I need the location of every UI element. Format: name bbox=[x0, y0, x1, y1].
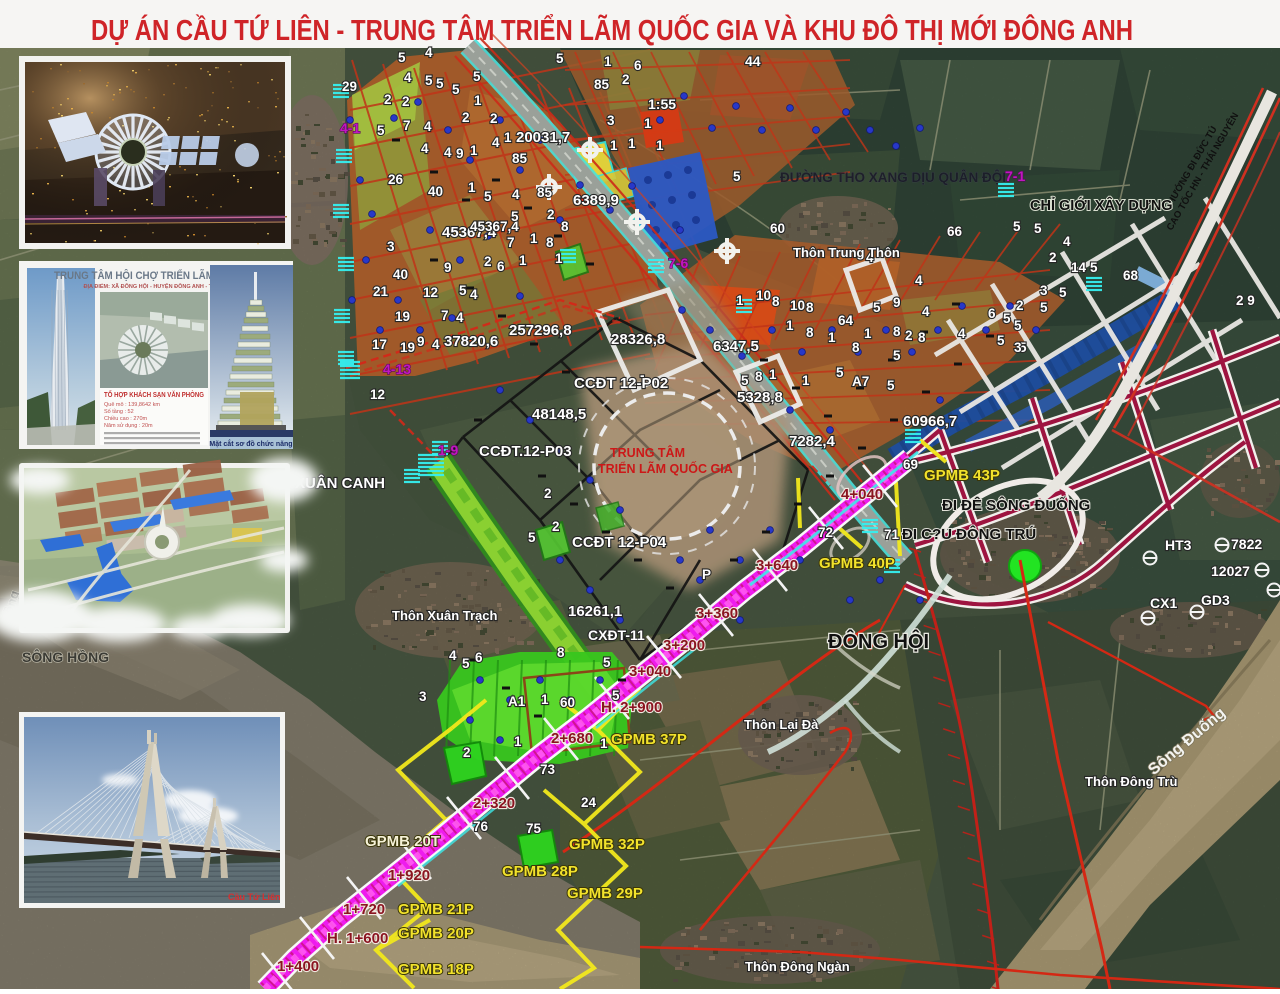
svg-text:1: 1 bbox=[470, 143, 478, 158]
svg-text:-: - bbox=[640, 368, 645, 383]
svg-text:2: 2 bbox=[484, 254, 492, 269]
svg-text:1+920: 1+920 bbox=[388, 867, 430, 884]
svg-text:1: 1 bbox=[628, 136, 636, 151]
svg-text:CX1: CX1 bbox=[1150, 595, 1177, 611]
svg-text:2: 2 bbox=[544, 486, 552, 501]
svg-text:8: 8 bbox=[893, 324, 901, 339]
svg-text:2+320: 2+320 bbox=[473, 795, 515, 812]
svg-text:1: 1 bbox=[786, 318, 794, 333]
svg-text:8: 8 bbox=[852, 340, 860, 355]
svg-text:5328,8: 5328,8 bbox=[737, 389, 783, 406]
svg-text:5: 5 bbox=[1014, 318, 1022, 333]
svg-text:3: 3 bbox=[419, 689, 427, 704]
svg-text:5: 5 bbox=[733, 169, 741, 184]
svg-text:Thôn Đông Trù: Thôn Đông Trù bbox=[1085, 774, 1177, 789]
svg-text:5: 5 bbox=[398, 50, 406, 65]
svg-text:ĐÔNG HỘI: ĐÔNG HỘI bbox=[828, 629, 929, 653]
svg-text:CCĐT 12-P04: CCĐT 12-P04 bbox=[572, 534, 667, 551]
svg-text:4: 4 bbox=[915, 273, 923, 288]
svg-text:7282,4: 7282,4 bbox=[789, 433, 836, 450]
svg-text:HT3: HT3 bbox=[1165, 537, 1192, 553]
svg-text:1: 1 bbox=[610, 138, 618, 153]
svg-text:21: 21 bbox=[373, 284, 389, 299]
svg-text:1: 1 bbox=[468, 180, 476, 195]
svg-text:37820,6: 37820,6 bbox=[444, 333, 498, 350]
svg-text:1: 1 bbox=[864, 326, 872, 341]
svg-text:Cầu Tứ Liên: Cầu Tứ Liên bbox=[228, 892, 281, 902]
svg-text:73: 73 bbox=[540, 762, 556, 777]
svg-text:6: 6 bbox=[988, 306, 996, 321]
svg-text:9: 9 bbox=[456, 146, 464, 161]
svg-text:7-1: 7-1 bbox=[1005, 168, 1025, 184]
svg-text:5: 5 bbox=[1003, 311, 1011, 326]
svg-text:SÔNG HỒNG: SÔNG HỒNG bbox=[22, 648, 109, 665]
svg-text:4+040: 4+040 bbox=[841, 486, 883, 503]
svg-text:85: 85 bbox=[537, 185, 553, 200]
svg-text:60966,7: 60966,7 bbox=[903, 413, 957, 430]
svg-text:8: 8 bbox=[546, 235, 554, 250]
svg-text:GPMB 21P: GPMB 21P bbox=[398, 901, 474, 918]
svg-text:5: 5 bbox=[1040, 300, 1048, 315]
svg-text:GD3: GD3 bbox=[1201, 592, 1230, 608]
svg-text:2+680: 2+680 bbox=[551, 730, 593, 747]
svg-text:5: 5 bbox=[1013, 219, 1021, 234]
svg-text:GPMB 43P: GPMB 43P bbox=[924, 467, 1000, 484]
svg-text:3+040: 3+040 bbox=[629, 663, 671, 680]
svg-text:5: 5 bbox=[741, 373, 749, 388]
svg-text:4: 4 bbox=[470, 287, 478, 302]
svg-text:20031,7: 20031,7 bbox=[516, 129, 570, 146]
svg-text:4: 4 bbox=[424, 119, 432, 134]
svg-text:8: 8 bbox=[755, 369, 763, 384]
svg-text:9: 9 bbox=[417, 334, 425, 349]
svg-text:60: 60 bbox=[770, 221, 785, 236]
svg-text:Chiều cao : 270m: Chiều cao : 270m bbox=[104, 416, 148, 422]
svg-text:1: 1 bbox=[828, 330, 836, 345]
svg-text:5: 5 bbox=[1034, 221, 1042, 236]
svg-text:4: 4 bbox=[432, 337, 440, 352]
svg-text:Thôn Đông Ngàn: Thôn Đông Ngàn bbox=[745, 959, 850, 974]
svg-text:CCĐT 12-P02: CCĐT 12-P02 bbox=[574, 375, 668, 392]
svg-text:TRIỂN LÃM QUỐC GIA: TRIỂN LÃM QUỐC GIA bbox=[598, 461, 733, 476]
svg-text:5: 5 bbox=[1090, 260, 1098, 275]
svg-text:GPMB 20P: GPMB 20P bbox=[398, 925, 474, 942]
svg-text:85: 85 bbox=[512, 151, 528, 166]
svg-text:16261,1: 16261,1 bbox=[568, 603, 622, 620]
svg-text:4-1: 4-1 bbox=[340, 120, 360, 136]
svg-text:4: 4 bbox=[958, 326, 966, 341]
svg-text:8: 8 bbox=[806, 300, 814, 315]
svg-text:1: 1 bbox=[736, 293, 744, 308]
svg-text:5: 5 bbox=[873, 300, 881, 315]
svg-text:Mặt cắt sơ đồ chức năng: Mặt cắt sơ đồ chức năng bbox=[209, 439, 292, 448]
svg-text:GPMB 18P: GPMB 18P bbox=[398, 961, 474, 978]
svg-text:7-6: 7-6 bbox=[668, 255, 688, 271]
svg-text:4: 4 bbox=[421, 141, 429, 156]
svg-text:75: 75 bbox=[526, 821, 542, 836]
svg-text:4: 4 bbox=[449, 648, 457, 663]
svg-text:Số tầng : 52: Số tầng : 52 bbox=[104, 409, 134, 415]
svg-text:Năm sử dụng : 20m: Năm sử dụng : 20m bbox=[104, 422, 153, 429]
svg-text:19: 19 bbox=[395, 309, 410, 324]
svg-text:4: 4 bbox=[1063, 234, 1071, 249]
svg-text:ĐƯỜNG THO XANG DỊU QUÂN ĐỘI: ĐƯỜNG THO XANG DỊU QUÂN ĐỘI bbox=[780, 170, 1006, 185]
svg-text:48148,5: 48148,5 bbox=[532, 406, 586, 423]
svg-text:1: 1 bbox=[474, 93, 482, 108]
svg-text:5: 5 bbox=[528, 530, 536, 545]
svg-text:26: 26 bbox=[388, 172, 404, 187]
svg-text:3+200: 3+200 bbox=[663, 637, 705, 654]
svg-text:1: 1 bbox=[769, 367, 777, 382]
svg-text:72: 72 bbox=[818, 525, 833, 540]
svg-text:8: 8 bbox=[806, 325, 814, 340]
svg-text:6389,9: 6389,9 bbox=[573, 192, 619, 209]
svg-text:2: 2 bbox=[462, 110, 470, 125]
svg-text:1-9: 1-9 bbox=[438, 442, 458, 458]
svg-text:1: 1 bbox=[555, 251, 563, 266]
svg-text:19: 19 bbox=[400, 340, 415, 355]
svg-text:2: 2 bbox=[402, 94, 410, 109]
svg-text:7: 7 bbox=[403, 118, 411, 133]
svg-text:H. 1+600: H. 1+600 bbox=[327, 930, 388, 947]
svg-text:7: 7 bbox=[507, 235, 515, 250]
svg-text:76: 76 bbox=[473, 819, 489, 834]
svg-text:9: 9 bbox=[444, 260, 452, 275]
svg-text:5: 5 bbox=[893, 348, 901, 363]
svg-text:12: 12 bbox=[370, 387, 385, 402]
svg-text:TỔ HỢP KHÁCH SẠN VĂN PHÒNG: TỔ HỢP KHÁCH SẠN VĂN PHÒNG bbox=[104, 390, 204, 399]
svg-text:2 9: 2 9 bbox=[1236, 293, 1255, 308]
svg-text:40: 40 bbox=[428, 184, 443, 199]
svg-text:3: 3 bbox=[1014, 340, 1022, 355]
svg-text:24: 24 bbox=[581, 795, 597, 810]
svg-text:1: 1 bbox=[519, 253, 527, 268]
svg-text:1: 1 bbox=[541, 692, 549, 707]
svg-text:DỰ ÁN CẦU TỨ LIÊN - TRUNG TÂM: DỰ ÁN CẦU TỨ LIÊN - TRUNG TÂM TRIỂN LÃM … bbox=[91, 13, 1133, 47]
svg-text:ĐI C?U ĐÔNG TRÚ: ĐI C?U ĐÔNG TRÚ bbox=[902, 525, 1036, 543]
svg-text:1: 1 bbox=[604, 54, 612, 69]
svg-text:4-13: 4-13 bbox=[383, 361, 411, 377]
svg-text:2: 2 bbox=[490, 111, 498, 126]
svg-text:A1: A1 bbox=[508, 694, 526, 709]
svg-text:4: 4 bbox=[404, 70, 412, 85]
svg-text:5: 5 bbox=[603, 655, 611, 670]
svg-text:4: 4 bbox=[444, 145, 452, 160]
svg-text:1: 1 bbox=[656, 138, 664, 153]
svg-text:40: 40 bbox=[393, 267, 408, 282]
svg-text:H. 2+900: H. 2+900 bbox=[601, 699, 662, 716]
svg-text:ĐI ĐÊ SÔNG ĐUỐNG: ĐI ĐÊ SÔNG ĐUỐNG bbox=[942, 496, 1090, 514]
svg-text:2: 2 bbox=[547, 207, 555, 222]
svg-text:Thôn Lại Đà: Thôn Lại Đà bbox=[744, 717, 819, 732]
svg-text:12027: 12027 bbox=[1211, 563, 1250, 579]
svg-text:Thôn Xuân Trạch: Thôn Xuân Trạch bbox=[392, 608, 498, 623]
svg-text:6347,5: 6347,5 bbox=[713, 338, 759, 355]
svg-text:85: 85 bbox=[594, 77, 610, 92]
svg-text:2: 2 bbox=[463, 745, 471, 760]
svg-text:1: 1 bbox=[644, 116, 652, 131]
svg-text:4: 4 bbox=[456, 310, 464, 325]
svg-text:2: 2 bbox=[622, 72, 630, 87]
svg-text:5: 5 bbox=[556, 51, 564, 66]
svg-text:6: 6 bbox=[475, 650, 483, 665]
svg-text:1: 1 bbox=[514, 734, 522, 749]
svg-text:60: 60 bbox=[560, 695, 575, 710]
svg-text:3: 3 bbox=[387, 239, 395, 254]
svg-text:28326,8: 28326,8 bbox=[611, 331, 665, 348]
svg-text:1+720: 1+720 bbox=[343, 901, 385, 918]
svg-text:6: 6 bbox=[497, 259, 505, 274]
svg-text:5: 5 bbox=[462, 656, 470, 671]
svg-text:8: 8 bbox=[772, 294, 780, 309]
svg-text:1+400: 1+400 bbox=[277, 958, 319, 975]
svg-text:GPMB 29P: GPMB 29P bbox=[567, 885, 643, 902]
svg-text:1: 1 bbox=[802, 373, 810, 388]
svg-text:3: 3 bbox=[1040, 283, 1048, 298]
svg-text:17: 17 bbox=[372, 337, 387, 352]
svg-text:1: 1 bbox=[600, 736, 608, 751]
svg-text:5: 5 bbox=[425, 73, 433, 88]
svg-text:5: 5 bbox=[473, 69, 481, 84]
svg-text:4: 4 bbox=[922, 304, 930, 319]
svg-text:5: 5 bbox=[887, 378, 895, 393]
svg-text:44: 44 bbox=[745, 53, 761, 69]
svg-text:P: P bbox=[702, 567, 711, 582]
svg-text:GPMB 32P: GPMB 32P bbox=[569, 836, 645, 853]
svg-text:Thôn Trung Thôn: Thôn Trung Thôn bbox=[793, 245, 900, 260]
svg-text:CXĐT-11: CXĐT-11 bbox=[588, 627, 645, 643]
svg-text:GPMB 20T: GPMB 20T bbox=[365, 833, 440, 850]
svg-text:5: 5 bbox=[377, 123, 385, 138]
svg-text:8: 8 bbox=[918, 330, 926, 345]
svg-text:CCĐT.12-P03: CCĐT.12-P03 bbox=[479, 443, 572, 460]
svg-text:29: 29 bbox=[342, 79, 357, 94]
svg-text:1: 1 bbox=[530, 231, 538, 246]
svg-text:5: 5 bbox=[836, 365, 844, 380]
svg-text:5: 5 bbox=[997, 333, 1005, 348]
svg-text:71: 71 bbox=[884, 527, 900, 542]
svg-text:8: 8 bbox=[557, 645, 565, 660]
svg-text:1:55: 1:55 bbox=[648, 96, 676, 112]
svg-text:4: 4 bbox=[425, 45, 433, 60]
svg-text:10: 10 bbox=[790, 298, 805, 313]
svg-text:2: 2 bbox=[1049, 250, 1057, 265]
svg-text:8: 8 bbox=[561, 219, 569, 234]
svg-text:3: 3 bbox=[607, 113, 615, 128]
svg-text:5: 5 bbox=[459, 283, 467, 298]
svg-text:5: 5 bbox=[436, 76, 444, 91]
svg-text:2: 2 bbox=[384, 92, 392, 107]
svg-text:66: 66 bbox=[947, 224, 963, 239]
svg-text:2: 2 bbox=[905, 328, 913, 343]
svg-text:69: 69 bbox=[903, 457, 918, 472]
svg-text:68: 68 bbox=[1123, 268, 1139, 283]
svg-text:5: 5 bbox=[484, 189, 492, 204]
svg-text:14: 14 bbox=[1071, 260, 1087, 275]
svg-text:64: 64 bbox=[838, 313, 854, 328]
svg-text:3+360: 3+360 bbox=[696, 605, 738, 622]
svg-text:4: 4 bbox=[492, 135, 500, 150]
svg-text:4: 4 bbox=[512, 187, 520, 202]
svg-text:3+640: 3+640 bbox=[756, 557, 798, 574]
svg-text:2: 2 bbox=[1016, 298, 1024, 313]
svg-text:Quê mô : 139,8642 km: Quê mô : 139,8642 km bbox=[104, 402, 160, 408]
svg-text:A7: A7 bbox=[852, 374, 869, 389]
svg-text:6: 6 bbox=[634, 58, 642, 73]
svg-text:5: 5 bbox=[1059, 285, 1067, 300]
svg-text:9: 9 bbox=[893, 295, 901, 310]
svg-text:7822: 7822 bbox=[1231, 536, 1262, 552]
svg-text:CHỈ GIỚI XÂY DỰNG: CHỈ GIỚI XÂY DỰNG bbox=[1030, 196, 1173, 214]
svg-text:TRUNG TÂM: TRUNG TÂM bbox=[610, 445, 685, 460]
svg-text:10: 10 bbox=[756, 288, 771, 303]
svg-text:7: 7 bbox=[441, 308, 449, 323]
svg-text:257296,8: 257296,8 bbox=[509, 322, 572, 339]
svg-text:GPMB 40P: GPMB 40P bbox=[819, 555, 895, 572]
svg-text:1: 1 bbox=[504, 130, 512, 145]
svg-text:5: 5 bbox=[511, 209, 519, 224]
svg-text:12: 12 bbox=[423, 285, 438, 300]
svg-text:GPMB 28P: GPMB 28P bbox=[502, 863, 578, 880]
svg-text:2: 2 bbox=[552, 519, 560, 534]
svg-text:5: 5 bbox=[452, 82, 460, 97]
svg-text:GPMB 37P: GPMB 37P bbox=[611, 731, 687, 748]
